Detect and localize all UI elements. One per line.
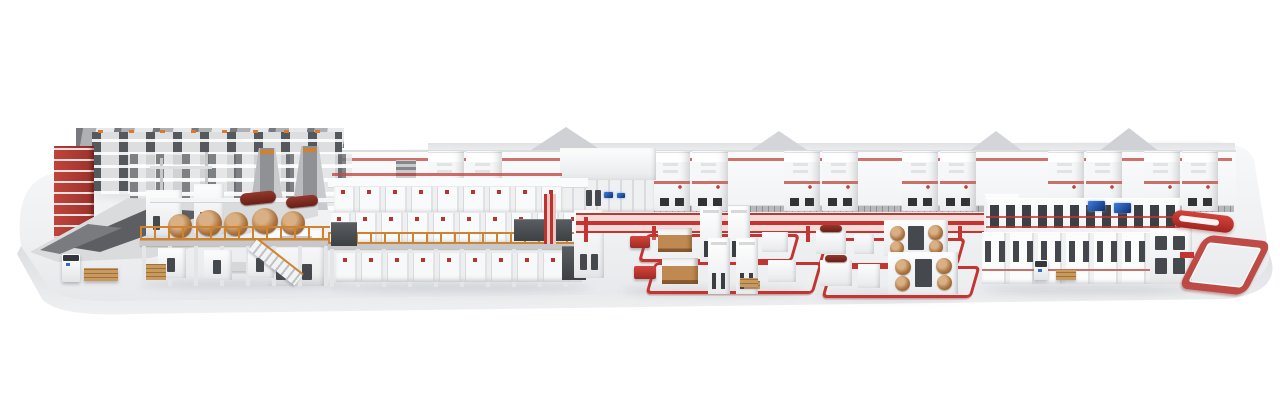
utility-cabinet bbox=[940, 151, 976, 211]
island-machine bbox=[768, 260, 796, 282]
gantry-red-stripe bbox=[986, 216, 1180, 218]
line-display-screen bbox=[1088, 201, 1105, 211]
finishing-cabinet-row bbox=[982, 232, 1174, 284]
island-machine bbox=[854, 234, 874, 254]
pallet-cart bbox=[84, 268, 118, 281]
cabinet-door-dark bbox=[595, 190, 601, 206]
wet-end-mezzanine bbox=[140, 186, 342, 286]
print-roll-unit bbox=[884, 220, 948, 256]
utility-cabinet bbox=[822, 151, 858, 211]
agv bbox=[1034, 260, 1048, 280]
converting-island-2 bbox=[812, 214, 962, 299]
converting-island-1 bbox=[618, 200, 818, 295]
finishing-line bbox=[980, 192, 1194, 288]
module-row-lower bbox=[336, 252, 582, 281]
island-cabinet bbox=[816, 230, 846, 254]
module-valves bbox=[334, 190, 562, 194]
rack-clamps bbox=[98, 130, 336, 133]
island-machine bbox=[858, 264, 880, 288]
gable-roof bbox=[748, 131, 810, 152]
gable-roof bbox=[1098, 128, 1160, 152]
print-roll-unit bbox=[888, 252, 958, 294]
stacker-tower bbox=[708, 238, 730, 294]
red-pipe bbox=[332, 173, 562, 176]
pallet-cart bbox=[1056, 270, 1076, 280]
red-loop-stub bbox=[1180, 252, 1194, 258]
under-deck-cabinet bbox=[204, 250, 232, 280]
splicer-mast bbox=[205, 152, 208, 188]
dark-red-roll bbox=[239, 190, 276, 206]
island-cabinet bbox=[820, 260, 852, 286]
steam-tower bbox=[544, 194, 556, 244]
prefeeder bbox=[662, 258, 698, 284]
hmi-screen bbox=[604, 192, 613, 198]
prefeeder bbox=[658, 228, 692, 252]
pallet-cart bbox=[740, 278, 758, 287]
line-display-screen bbox=[1114, 203, 1131, 213]
red-conveyor-link bbox=[584, 217, 588, 242]
end-panel bbox=[331, 222, 357, 246]
utility-cabinet bbox=[902, 151, 938, 211]
end-panel bbox=[514, 219, 572, 241]
mezzanine-deck bbox=[140, 238, 340, 246]
island-machine bbox=[762, 232, 788, 252]
shuttle-cart bbox=[634, 266, 656, 279]
pallet-stack bbox=[146, 264, 166, 280]
agv bbox=[62, 254, 80, 282]
hmi-screen bbox=[617, 193, 625, 198]
shuttle-cart bbox=[630, 236, 650, 248]
gable-roof bbox=[968, 131, 1024, 152]
module-valves bbox=[336, 258, 582, 262]
splicer-crossbeam bbox=[150, 166, 212, 169]
dark-red-roll bbox=[286, 194, 319, 208]
production-line-render bbox=[0, 0, 1280, 405]
